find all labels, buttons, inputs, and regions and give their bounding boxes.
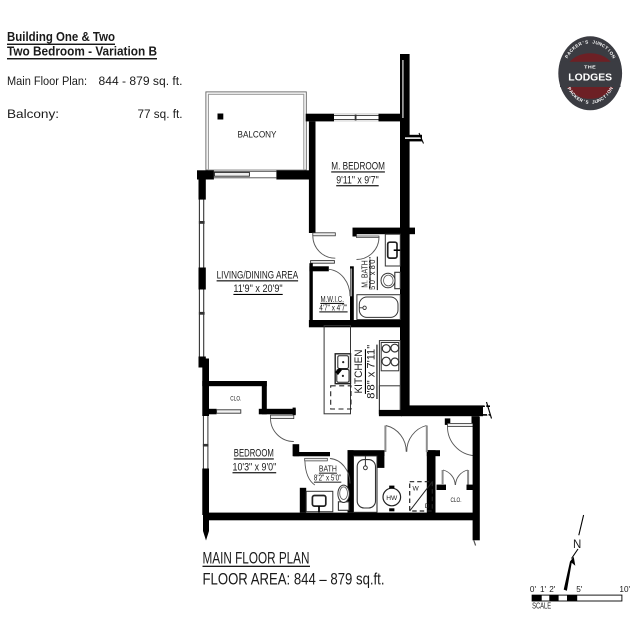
svg-text:4'7" x 4'7": 4'7" x 4'7" xyxy=(319,303,347,312)
svg-text:CLO.: CLO. xyxy=(451,497,462,504)
svg-text:10': 10' xyxy=(619,585,630,594)
svg-text:LODGES: LODGES xyxy=(568,72,612,83)
svg-text:844 - 879 sq. ft.: 844 - 879 sq. ft. xyxy=(99,74,183,88)
svg-text:8'2" x 5'0": 8'2" x 5'0" xyxy=(314,474,342,483)
svg-text:1': 1' xyxy=(540,585,547,594)
svg-text:M. BEDROOM: M. BEDROOM xyxy=(331,161,385,173)
svg-text:Two Bedroom - Variation B: Two Bedroom - Variation B xyxy=(7,45,157,59)
svg-text:8'8" x 7'11": 8'8" x 7'11" xyxy=(365,345,377,399)
svg-text:Balcony:: Balcony: xyxy=(7,107,59,121)
svg-text:2': 2' xyxy=(549,585,556,594)
svg-text:77 sq. ft.: 77 sq. ft. xyxy=(138,107,183,121)
svg-text:11'9" x 20'9": 11'9" x 20'9" xyxy=(233,283,282,295)
svg-text:CLO.: CLO. xyxy=(230,395,241,402)
svg-text:HW: HW xyxy=(386,495,398,502)
svg-text:D: D xyxy=(425,503,430,510)
svg-text:BEDROOM: BEDROOM xyxy=(234,448,274,460)
svg-text:MAIN FLOOR PLAN: MAIN FLOOR PLAN xyxy=(203,549,310,568)
svg-text:LIVING/DINING AREA: LIVING/DINING AREA xyxy=(217,269,299,281)
svg-text:Building One & Two: Building One & Two xyxy=(7,30,115,44)
svg-text:5'0" x 8'0": 5'0" x 8'0" xyxy=(368,257,377,290)
svg-text:S: S xyxy=(585,39,589,44)
svg-text:FLOOR AREA: 844 – 879 sq.ft.: FLOOR AREA: 844 – 879 sq.ft. xyxy=(203,570,385,589)
svg-text:KITCHEN: KITCHEN xyxy=(353,350,365,394)
svg-text:S: S xyxy=(585,99,589,104)
svg-text:BATH: BATH xyxy=(319,465,337,474)
svg-text:N: N xyxy=(573,539,581,551)
svg-text:SCALE: SCALE xyxy=(532,602,551,611)
svg-text:BALCONY: BALCONY xyxy=(238,130,278,141)
svg-text:W: W xyxy=(413,486,420,493)
svg-text:9'11" x 9'7": 9'11" x 9'7" xyxy=(336,174,379,186)
svg-text:Main Floor Plan:: Main Floor Plan: xyxy=(7,74,87,88)
svg-text:THE: THE xyxy=(584,65,596,71)
svg-text:5': 5' xyxy=(576,585,583,594)
svg-text:0': 0' xyxy=(530,585,537,594)
svg-text:10'3" x 9'0": 10'3" x 9'0" xyxy=(233,461,277,473)
